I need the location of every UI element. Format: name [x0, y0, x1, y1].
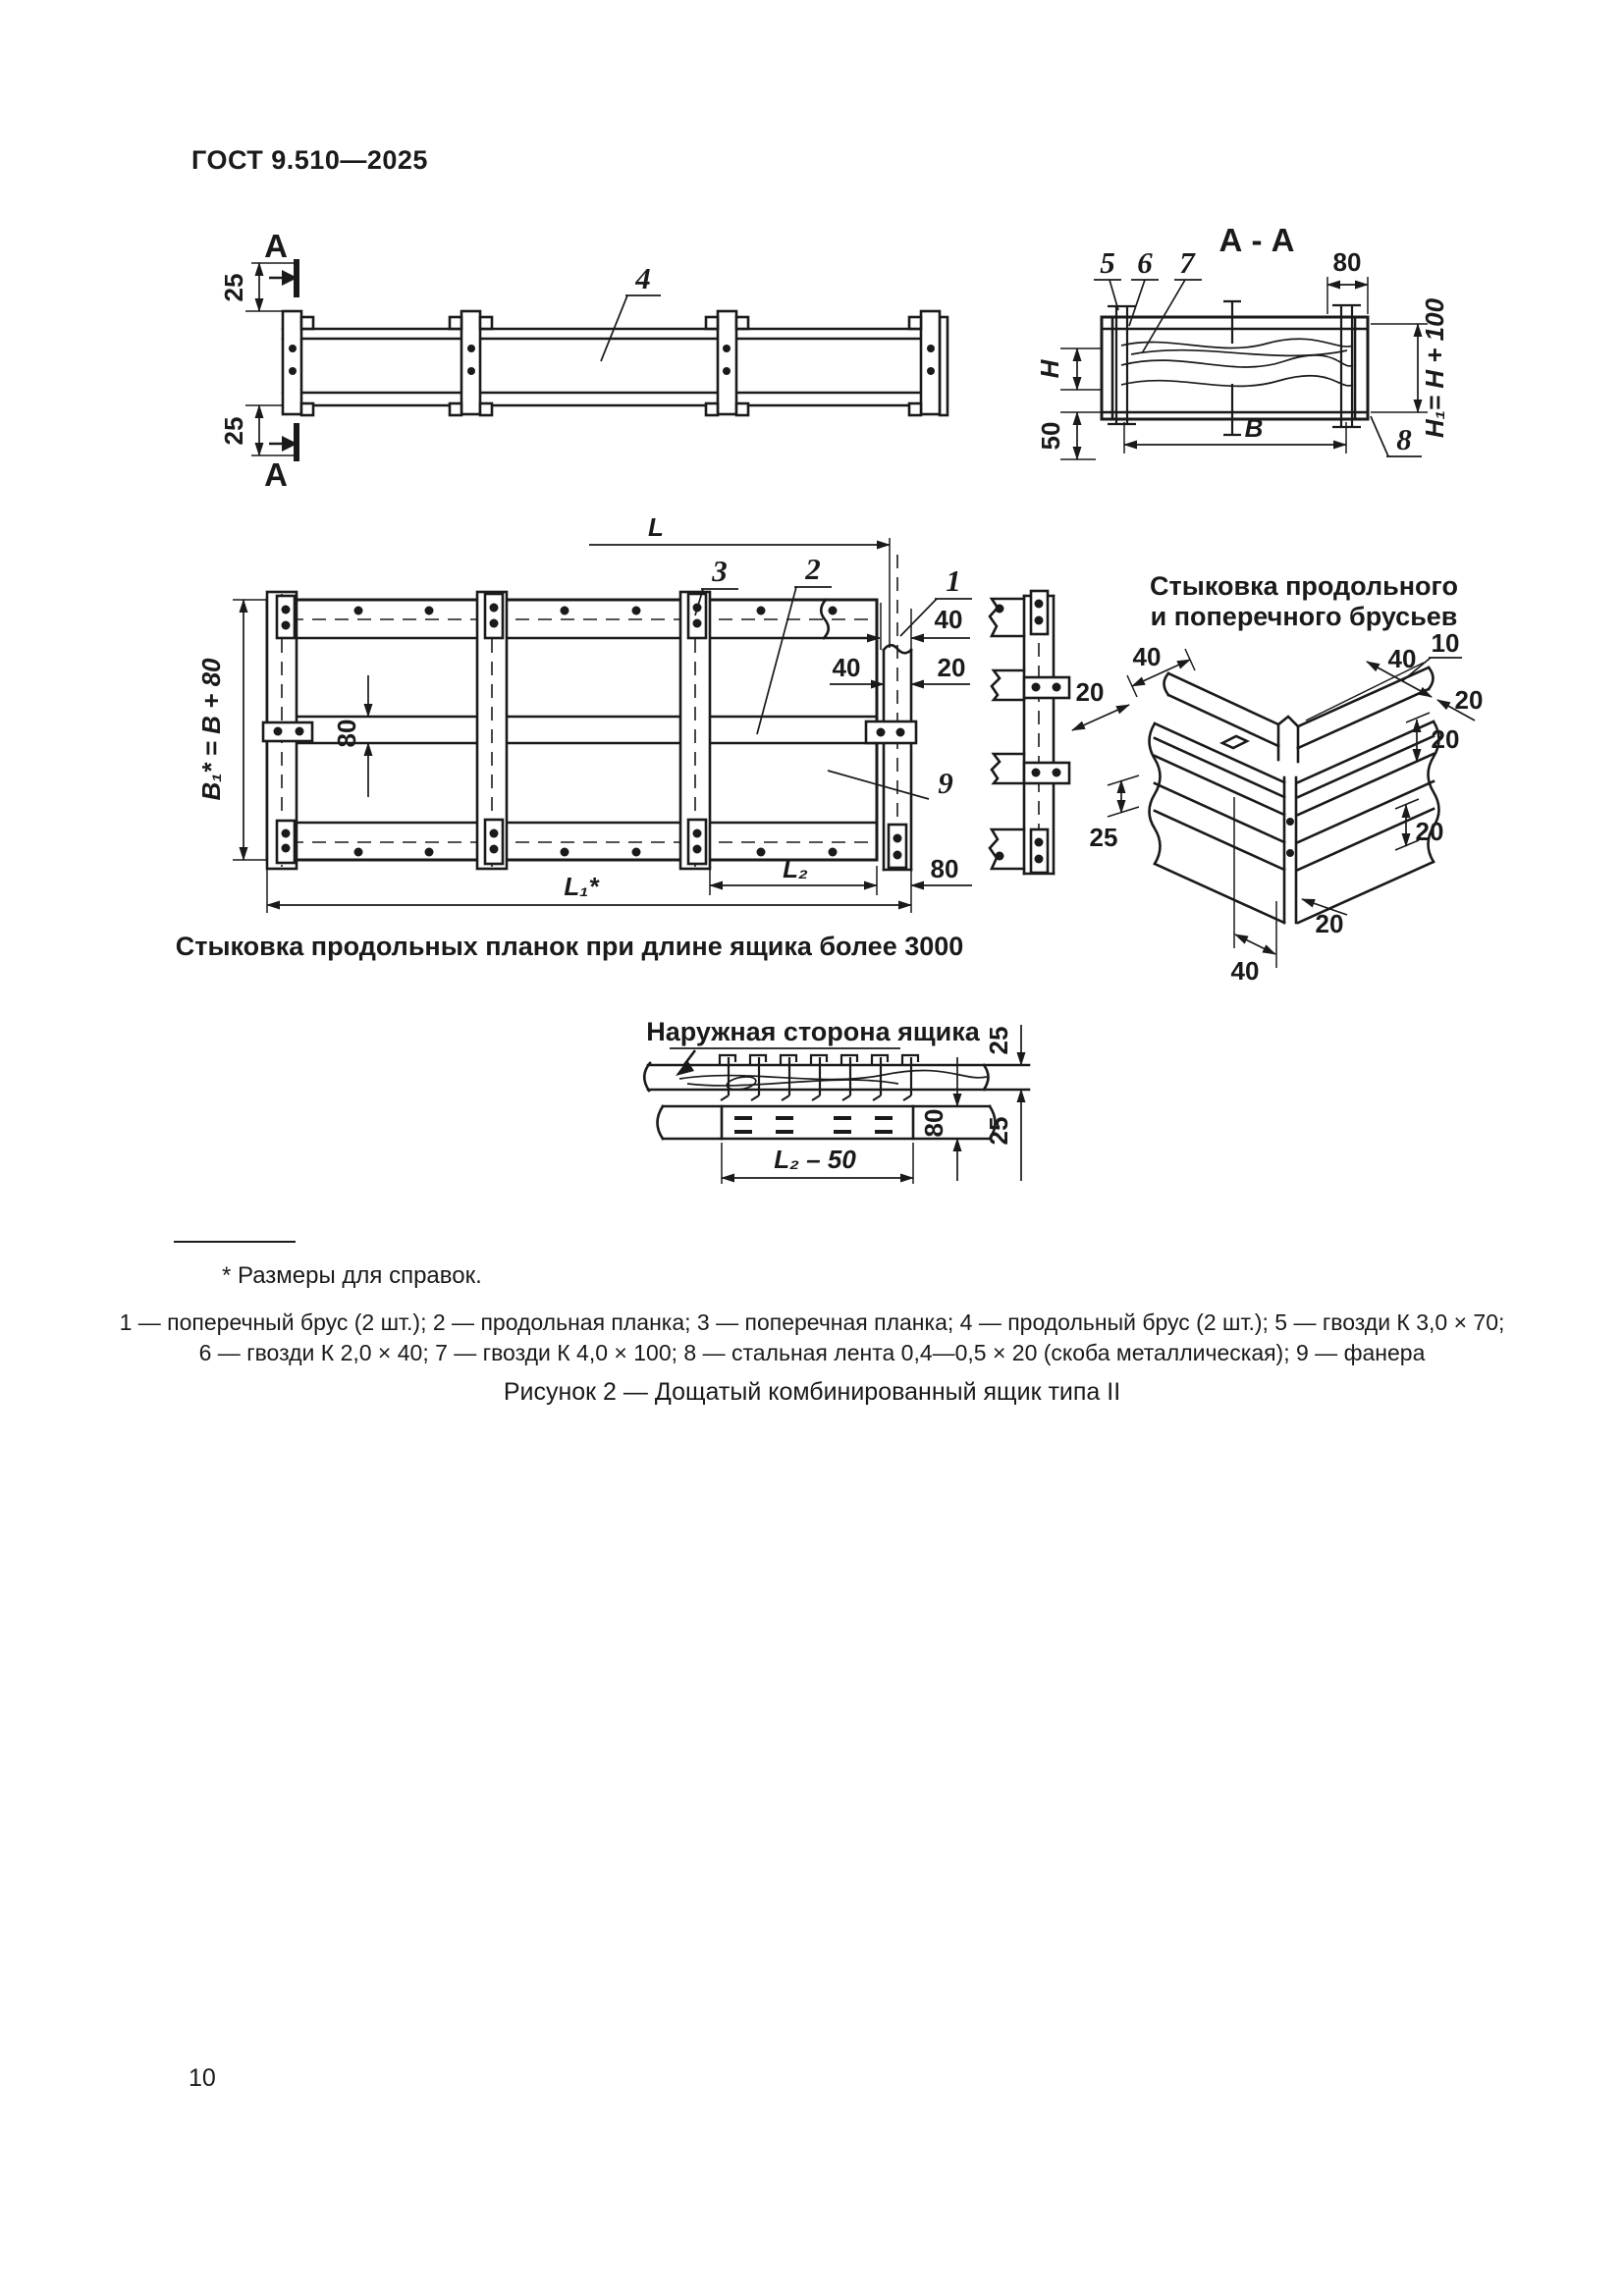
- batten: [718, 311, 736, 414]
- section-letter-top: А: [264, 228, 288, 264]
- document-page: ГОСТ 9.510—2025: [0, 0, 1624, 2296]
- dim-20-r2: 20: [1432, 724, 1460, 754]
- dim-25-bottom: 25: [219, 417, 248, 446]
- part-label-5: 5: [1100, 245, 1115, 280]
- dim-b: В: [1245, 413, 1264, 443]
- footnote-rule: [174, 1241, 296, 1243]
- dim-40-tr: 40: [1388, 644, 1417, 673]
- dim-20-l: 20: [1076, 677, 1105, 707]
- dim-h: H: [1035, 358, 1064, 378]
- dim-80-right: 80: [931, 854, 959, 883]
- dim-40-tl: 40: [1133, 642, 1162, 671]
- dim-25-l: 25: [1090, 823, 1118, 852]
- hidden-nail-marks: [734, 1118, 893, 1132]
- dim-40-b: 40: [833, 653, 861, 682]
- dim-40-b: 40: [1231, 956, 1260, 986]
- outer-side-title: Наружная сторона ящика: [646, 1017, 981, 1046]
- nails-section: [1108, 301, 1361, 435]
- plan-splice-caption: Стыковка продольных планок при длине ящи…: [162, 932, 977, 962]
- corner-joint-title-line1: Стыковка продольного: [1150, 571, 1458, 601]
- page-number: 10: [189, 2064, 216, 2093]
- part-label-3: 3: [711, 554, 728, 588]
- legend-line-2: 6 — гвозди К 2,0 × 40; 7 — гвозди К 4,0 …: [79, 1338, 1545, 1368]
- dim-10: 10: [1432, 628, 1460, 658]
- corner-joint-title-line2: и поперечного брусьев: [1151, 602, 1458, 631]
- dim-25-top: 25: [219, 274, 248, 302]
- dim-40-a: 40: [935, 605, 963, 634]
- dim-25-top-outer: 25: [984, 1027, 1013, 1055]
- parts-legend: 1 — поперечный брус (2 шт.); 2 — продоль…: [79, 1308, 1545, 1368]
- batten: [461, 311, 480, 414]
- dim-80-section: 80: [1333, 247, 1362, 277]
- part-label-8: 8: [1396, 422, 1412, 456]
- outer-side-drawing: Наружная сторона ящика: [644, 1017, 1029, 1184]
- dim-l: L: [648, 512, 664, 542]
- footnote-text: * Размеры для справок.: [222, 1262, 482, 1290]
- dim-h1: H₁= H + 100: [1420, 297, 1449, 438]
- figure-2-drawing: А А 25 25 4 А - А: [0, 0, 1624, 2296]
- part-label-1: 1: [946, 563, 961, 598]
- dim-20-r1: 20: [1455, 685, 1484, 715]
- part-label-6: 6: [1137, 245, 1153, 280]
- section-aa-drawing: А - А 5 6: [1035, 222, 1449, 459]
- dim-b1: B₁* = B + 80: [196, 658, 226, 801]
- dim-50: 50: [1036, 422, 1065, 451]
- dim-20-b: 20: [1316, 909, 1344, 938]
- section-title: А - А: [1219, 222, 1295, 258]
- section-mark-bottom: А: [264, 423, 298, 493]
- figure-caption: Рисунок 2 — Дощатый комбинированный ящик…: [0, 1378, 1624, 1407]
- legend-line-1: 1 — поперечный брус (2 шт.); 2 — продоль…: [79, 1308, 1545, 1338]
- dim-80-outer: 80: [919, 1109, 948, 1138]
- section-letter-bottom: А: [264, 456, 288, 493]
- dim-l2: L₂: [783, 854, 808, 883]
- dim-20-r3: 20: [1416, 817, 1444, 846]
- part-label-4: 4: [634, 261, 651, 295]
- batten: [921, 311, 940, 414]
- side-view-drawing: А А 25 25 4: [219, 228, 947, 493]
- dim-20: 20: [938, 653, 966, 682]
- part-label-9: 9: [938, 766, 953, 800]
- batten: [283, 311, 301, 414]
- dim-l2-minus-50: L₂ – 50: [774, 1145, 856, 1174]
- part-label-2: 2: [804, 552, 821, 586]
- dim-25-right-outer: 25: [984, 1117, 1013, 1146]
- plan-view-drawing: L 40 40 20 80 B₁* = B + 80 L₂ 80: [196, 512, 972, 913]
- part-label-7: 7: [1179, 245, 1196, 280]
- dim-80-mid: 80: [332, 720, 361, 748]
- corner-joint-drawing: Стыковка продольного и поперечного брусь…: [1072, 571, 1483, 986]
- broken-end-strip: [990, 591, 1069, 874]
- dim-l1: L₁*: [564, 872, 600, 901]
